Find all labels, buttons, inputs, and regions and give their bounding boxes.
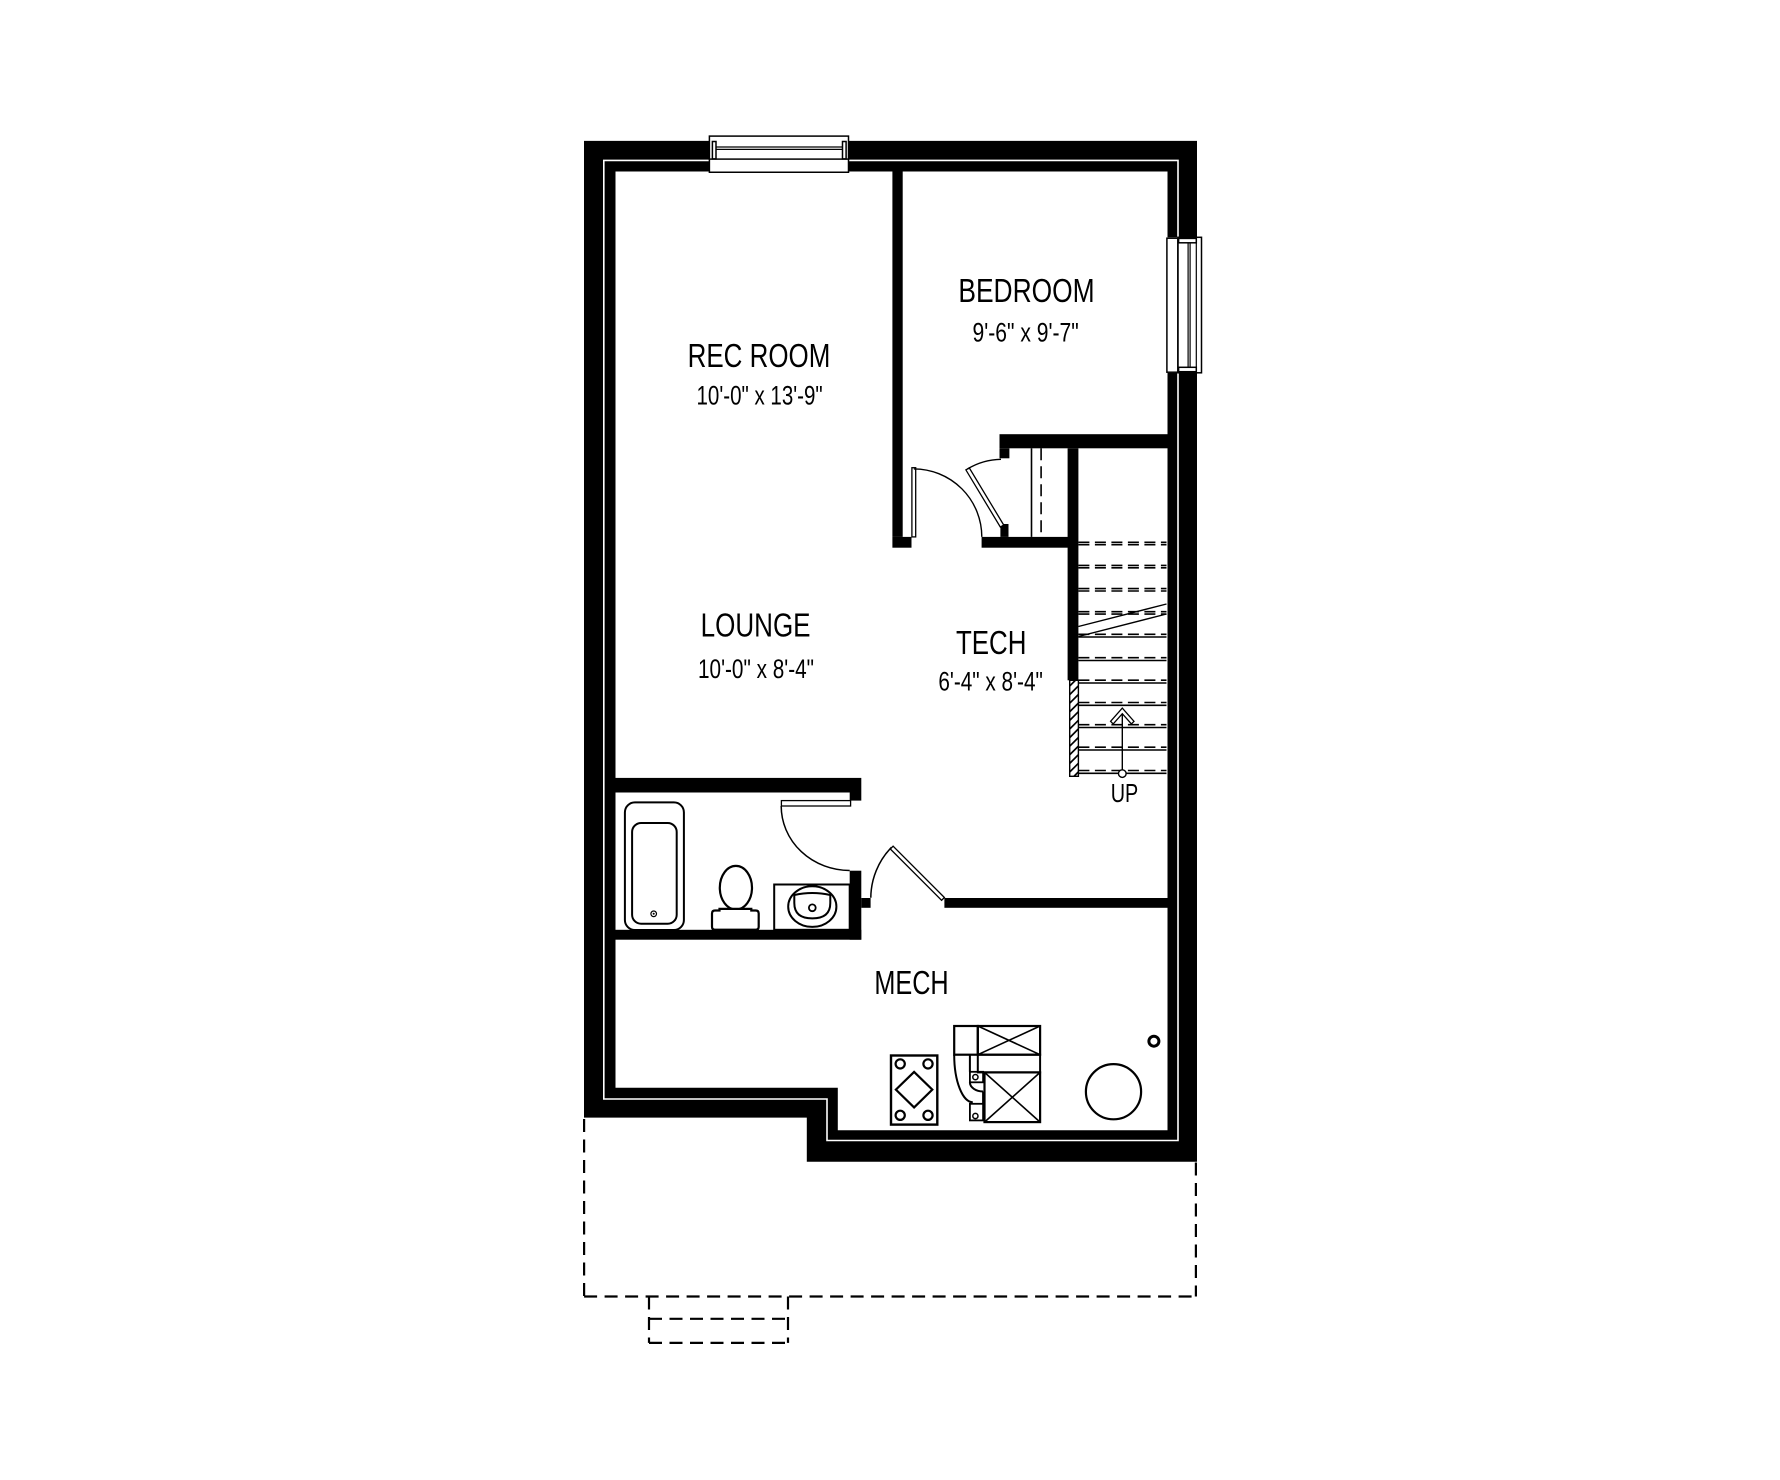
svg-text:9'-6" x 9'-7": 9'-6" x 9'-7" (973, 317, 1079, 347)
svg-text:6'-4" x 8'-4": 6'-4" x 8'-4" (938, 667, 1043, 697)
svg-text:BEDROOM: BEDROOM (958, 273, 1094, 310)
svg-text:10'-0" x 8'-4": 10'-0" x 8'-4" (698, 654, 814, 684)
svg-text:10'-0" x 13'-9": 10'-0" x 13'-9" (697, 380, 823, 410)
svg-text:LOUNGE: LOUNGE (701, 608, 811, 645)
svg-text:MECH: MECH (874, 965, 948, 1002)
svg-text:TECH: TECH (956, 625, 1027, 662)
svg-text:REC ROOM: REC ROOM (688, 338, 831, 375)
svg-text:UP: UP (1111, 778, 1139, 808)
